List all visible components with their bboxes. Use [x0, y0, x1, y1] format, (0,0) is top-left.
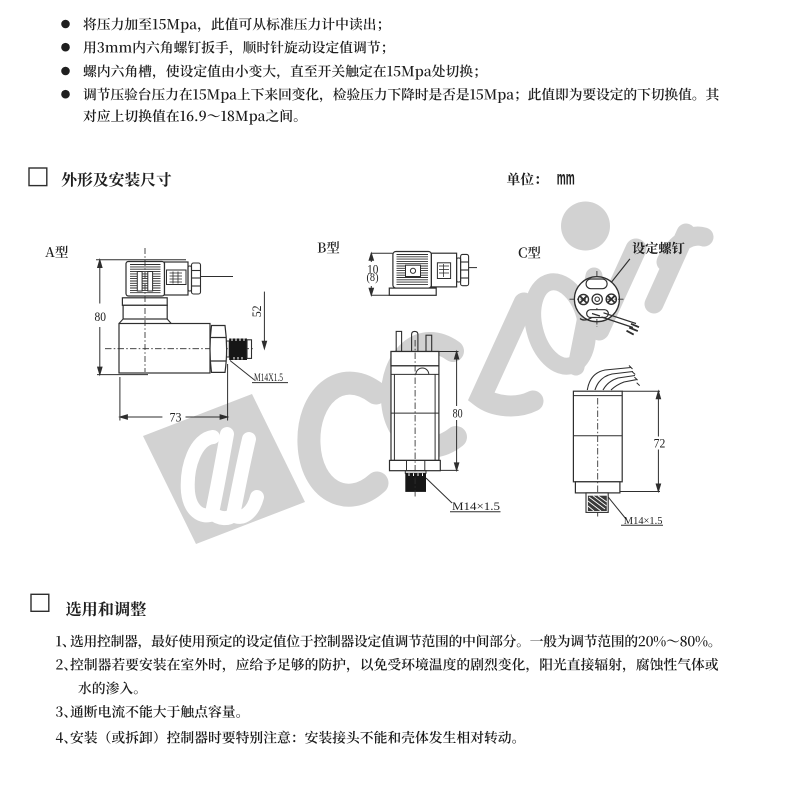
svg-text:80: 80: [453, 406, 463, 420]
svg-text:52: 52: [250, 305, 264, 317]
svg-text:M14X1.5: M14X1.5: [254, 372, 283, 384]
svg-text:72: 72: [654, 436, 666, 450]
svg-text:80: 80: [95, 309, 107, 324]
svg-text:mm: mm: [557, 169, 575, 190]
svg-text:M14×1.5: M14×1.5: [452, 499, 500, 513]
svg-text:73: 73: [170, 410, 182, 424]
svg-text:(8): (8): [367, 270, 379, 284]
